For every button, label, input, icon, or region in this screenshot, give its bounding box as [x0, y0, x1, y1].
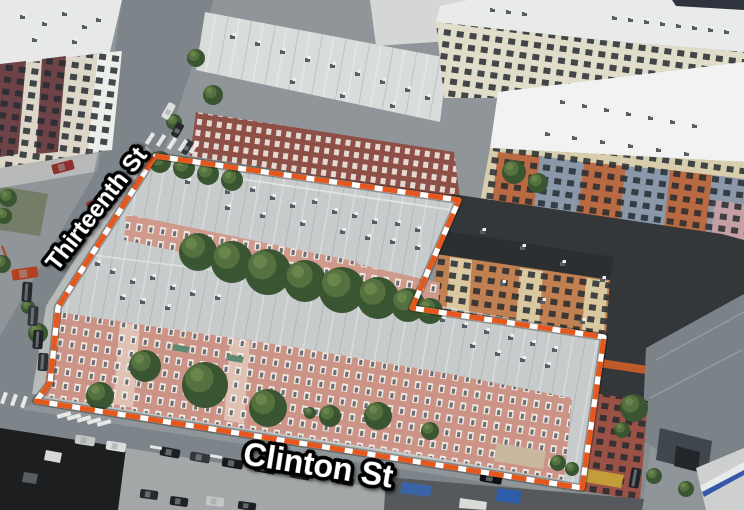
tree-highlight — [190, 368, 204, 382]
tree — [550, 455, 566, 471]
car-windshield — [80, 437, 87, 444]
rooftop-unit — [218, 294, 222, 297]
car-windshield — [195, 454, 202, 461]
rooftop-unit — [511, 334, 515, 337]
rooftop-unit — [583, 318, 587, 321]
rooftop-unit — [493, 6, 497, 9]
rooftop-unit — [143, 298, 147, 301]
rooftop-unit — [687, 150, 691, 153]
rooftop-unit — [727, 28, 731, 31]
aerial-scene: Thirteenth St Clinton St — [0, 0, 744, 510]
rooftop-unit — [473, 342, 477, 345]
rooftop-unit — [548, 362, 552, 365]
tree — [304, 407, 316, 419]
rooftop-unit — [679, 22, 683, 25]
rooftop-unit — [343, 228, 347, 231]
rooftop-unit — [465, 322, 469, 325]
rooftop-unit — [375, 218, 379, 221]
rooftop-unit — [695, 24, 699, 27]
car-windshield — [19, 269, 28, 278]
tree-highlight — [681, 483, 686, 488]
rooftop-unit — [523, 356, 527, 359]
tree — [284, 260, 326, 302]
rooftop-unit — [487, 328, 491, 331]
tree-highlight — [323, 408, 330, 415]
rooftop-unit — [283, 48, 287, 51]
rooftop-unit — [343, 92, 347, 95]
rooftop-unit — [308, 56, 312, 59]
rooftop-unit — [651, 114, 655, 117]
tree — [646, 468, 662, 484]
rooftop-unit — [368, 234, 372, 237]
rooftop-unit — [383, 78, 387, 81]
rooftop-unit — [228, 204, 232, 207]
tree-highlight — [306, 409, 310, 413]
rooftop-unit — [358, 70, 362, 73]
tree — [245, 249, 291, 295]
rooftop-unit — [123, 294, 127, 297]
tree-highlight — [2, 191, 7, 196]
tree-highlight — [291, 265, 304, 278]
rooftop-unit — [615, 14, 619, 17]
car-windshield — [243, 503, 249, 509]
tree-highlight — [135, 354, 145, 364]
car-windshield — [211, 498, 217, 505]
tree-highlight — [218, 246, 231, 259]
tree-highlight — [617, 424, 622, 429]
tree-highlight — [532, 176, 538, 182]
rooftop-unit — [711, 26, 715, 29]
rooftop-unit — [585, 102, 589, 105]
aerial-site-photo: Thirteenth St Clinton St — [0, 0, 744, 510]
rooftop-unit — [563, 260, 567, 263]
rooftop-unit — [133, 278, 137, 281]
rooftop-unit — [695, 122, 699, 125]
rooftop-unit — [428, 94, 432, 97]
rooftop-unit — [193, 290, 197, 293]
rooftop-unit — [273, 194, 277, 197]
rooftop-unit — [631, 16, 635, 19]
tree — [319, 267, 365, 313]
car — [37, 353, 48, 372]
rooftop-unit — [65, 10, 69, 13]
rooftop-unit — [335, 208, 339, 211]
rooftop-unit — [258, 40, 262, 43]
tree — [528, 173, 548, 193]
car-windshield — [145, 491, 151, 498]
tree — [182, 362, 228, 408]
tree-highlight — [567, 464, 571, 468]
tree — [129, 350, 161, 382]
car-windshield — [165, 449, 172, 456]
rooftop-unit — [418, 226, 422, 229]
rooftop-unit — [233, 33, 237, 36]
rooftop-unit — [673, 118, 677, 121]
rooftop-unit — [188, 178, 192, 181]
rooftop-unit — [483, 228, 487, 231]
tree — [203, 85, 223, 105]
rooftop-unit — [629, 110, 633, 113]
car — [27, 306, 38, 327]
rooftop-unit — [75, 38, 79, 41]
ground-layer — [0, 0, 744, 510]
rooftop-unit — [603, 138, 607, 141]
tree — [421, 422, 439, 440]
rooftop-unit — [398, 220, 402, 223]
rooftop-unit — [293, 78, 297, 81]
tree-highlight — [397, 292, 407, 302]
rooftop-unit — [525, 10, 529, 13]
tree — [614, 422, 630, 438]
rooftop-unit — [498, 350, 502, 353]
rooftop-unit — [23, 13, 27, 16]
rooftop-unit — [293, 202, 297, 205]
rooftop-unit — [98, 260, 102, 263]
rooftop-unit — [659, 146, 663, 149]
tree-highlight — [424, 424, 429, 429]
tree — [678, 481, 694, 497]
rooftop-unit — [393, 238, 397, 241]
rooftop-unit — [533, 340, 537, 343]
rooftop-unit — [45, 20, 49, 23]
rooftop-unit — [543, 298, 547, 301]
rooftop-unit — [168, 304, 172, 307]
car-windshield — [111, 443, 118, 450]
tree-highlight — [625, 398, 633, 406]
tree-highlight — [364, 282, 377, 295]
tree — [187, 49, 205, 67]
rooftop-unit — [663, 20, 667, 23]
tree-highlight — [190, 51, 195, 56]
rooftop-unit — [153, 274, 157, 277]
rooftop-unit — [263, 212, 267, 215]
rooftop-unit — [509, 8, 513, 11]
rooftop-unit — [523, 244, 527, 247]
rooftop-unit — [548, 130, 552, 133]
tree-highlight — [649, 470, 654, 475]
rooftop-unit — [603, 276, 607, 279]
rooftop-unit — [315, 198, 319, 201]
rooftop-unit — [393, 102, 397, 105]
rooftop-unit — [35, 36, 39, 39]
rooftop-unit — [85, 23, 89, 26]
tree-highlight — [225, 172, 232, 179]
tree-highlight — [327, 273, 341, 287]
tree-highlight — [207, 88, 213, 94]
tree — [319, 405, 341, 427]
rooftop-unit — [173, 284, 177, 287]
tree-highlight — [256, 394, 267, 405]
rooftop-unit — [99, 16, 103, 19]
rooftop-unit — [113, 268, 117, 271]
tree-highlight — [553, 457, 558, 462]
car-windshield — [175, 498, 181, 505]
tree — [249, 389, 287, 427]
rooftop-unit — [333, 62, 337, 65]
tree-highlight — [186, 238, 197, 249]
tree — [364, 402, 392, 430]
tree — [502, 160, 526, 184]
car — [32, 330, 43, 350]
tree — [565, 462, 579, 476]
rooftop-unit — [647, 18, 651, 21]
rooftop-unit — [607, 106, 611, 109]
tree — [620, 394, 648, 422]
tree-highlight — [91, 386, 99, 394]
car-windshield — [227, 460, 234, 467]
rooftop-unit — [303, 220, 307, 223]
black-roof-unit-2 — [22, 472, 38, 484]
car — [21, 282, 32, 303]
tree-highlight — [369, 406, 377, 414]
rooftop-unit — [631, 142, 635, 145]
rooftop-unit — [355, 212, 359, 215]
rooftop-unit — [253, 186, 257, 189]
rooftop-unit — [408, 86, 412, 89]
rooftop-unit — [575, 134, 579, 137]
tree-highlight — [23, 302, 27, 306]
rooftop-unit — [418, 244, 422, 247]
rooftop-unit — [563, 98, 567, 101]
rooftop-unit — [503, 280, 507, 283]
rooftop-unit — [555, 346, 559, 349]
tree-highlight — [253, 255, 267, 269]
tree-highlight — [506, 163, 513, 170]
